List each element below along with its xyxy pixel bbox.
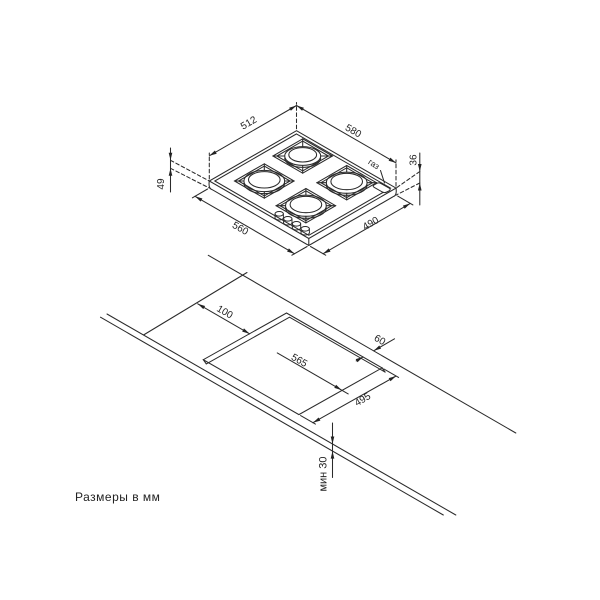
svg-text:512: 512: [239, 114, 259, 132]
svg-text:490: 490: [361, 215, 381, 233]
svg-text:565: 565: [289, 352, 309, 370]
svg-text:580: 580: [343, 123, 363, 141]
svg-text:100: 100: [215, 304, 235, 322]
svg-text:газ: газ: [366, 157, 381, 172]
svg-text:60: 60: [372, 333, 388, 348]
svg-text:560: 560: [230, 220, 250, 238]
svg-text:Размеры в мм: Размеры в мм: [75, 490, 160, 504]
svg-text:36: 36: [409, 154, 420, 166]
svg-text:495: 495: [353, 391, 373, 409]
svg-text:мин 30: мин 30: [318, 456, 330, 491]
svg-text:49: 49: [156, 178, 167, 190]
